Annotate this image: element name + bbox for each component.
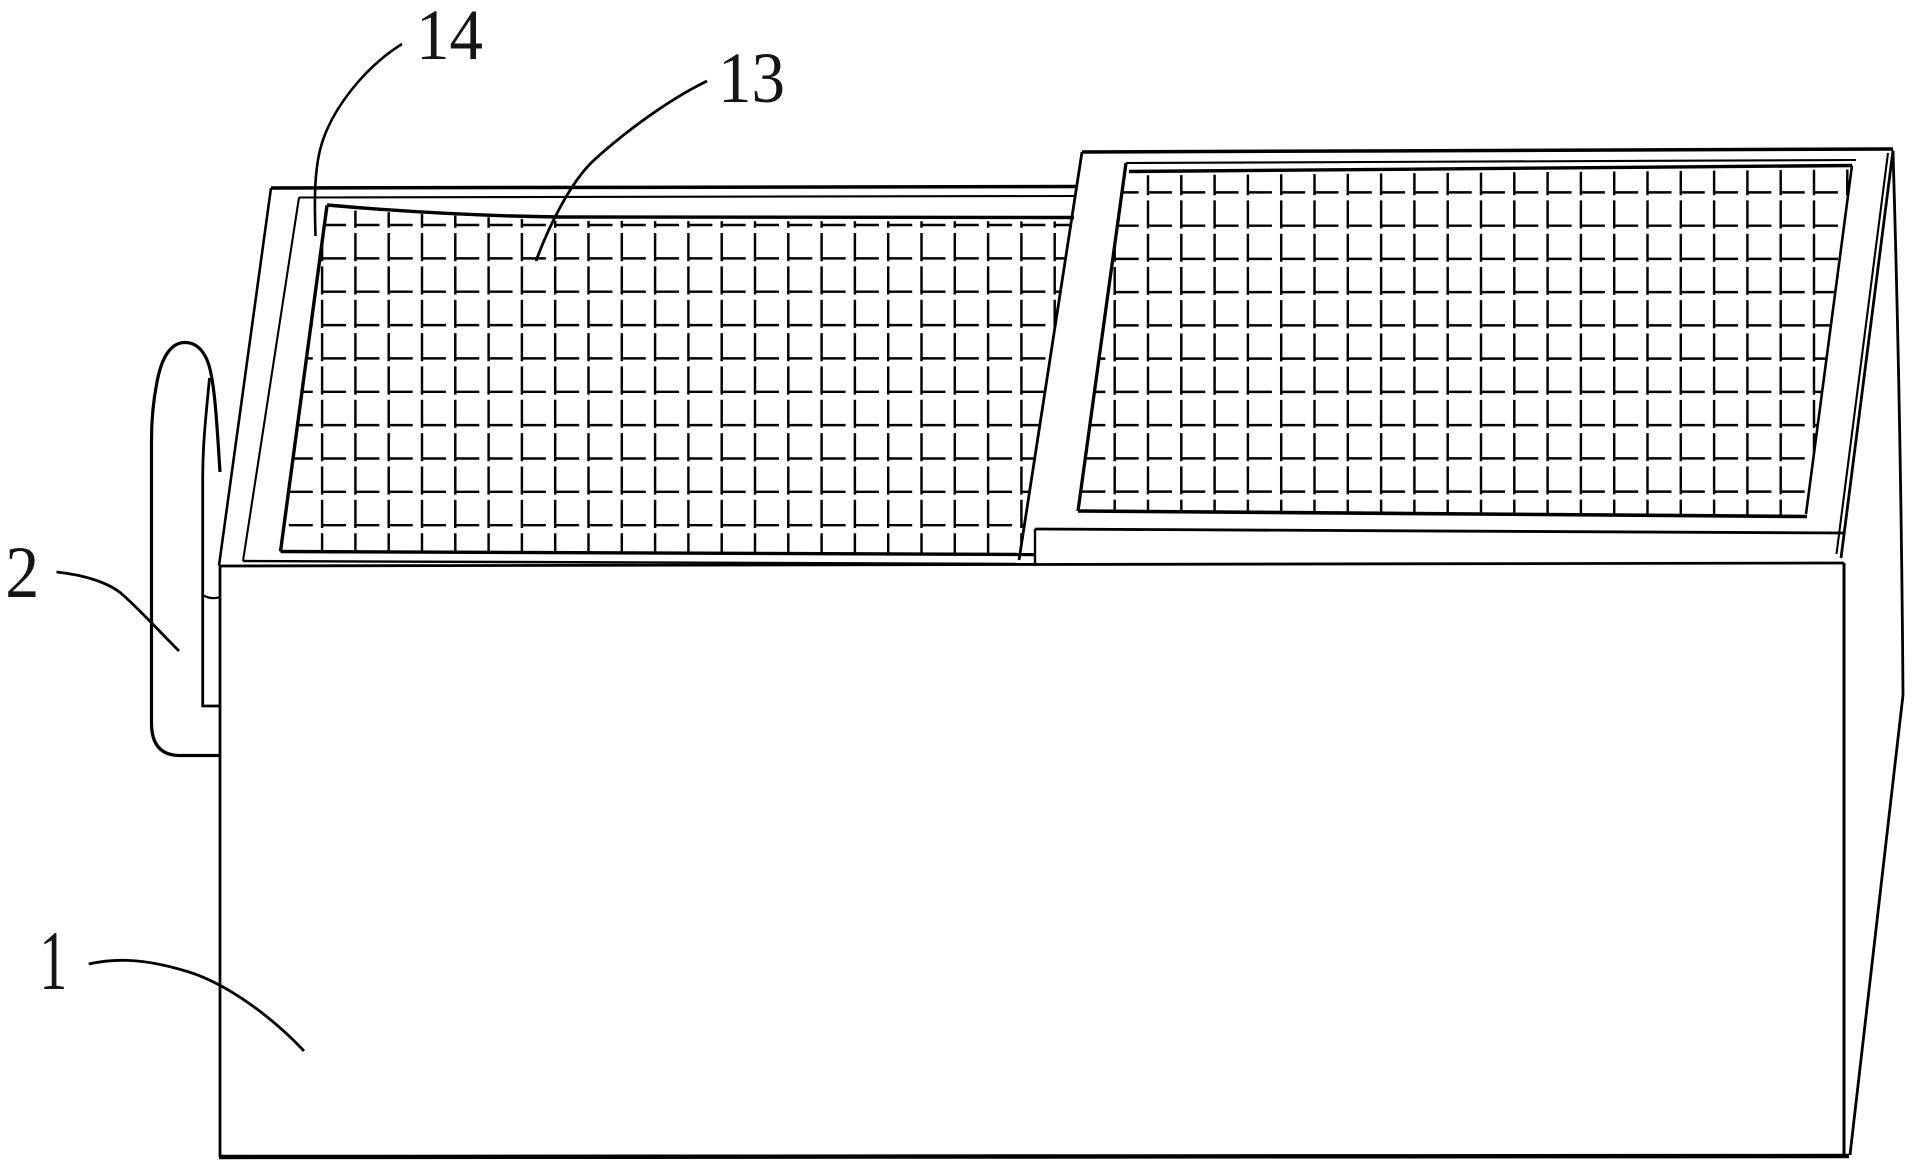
- svg-text:1: 1: [39, 914, 67, 1008]
- svg-text:13: 13: [718, 38, 785, 118]
- svg-text:14: 14: [416, 0, 483, 75]
- svg-text:2: 2: [5, 532, 39, 614]
